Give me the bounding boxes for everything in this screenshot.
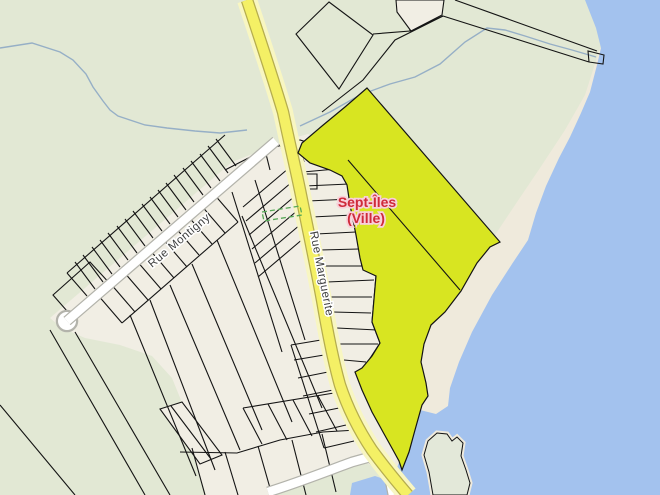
map-viewport[interactable]: Rue Montigny Rue Marguerite Sept-Îles (V… bbox=[0, 0, 660, 495]
city-label-line2: (Ville) bbox=[347, 210, 385, 226]
map-canvas[interactable]: Rue Montigny Rue Marguerite Sept-Îles (V… bbox=[0, 0, 660, 495]
city-label-line1: Sept-Îles bbox=[338, 193, 397, 210]
